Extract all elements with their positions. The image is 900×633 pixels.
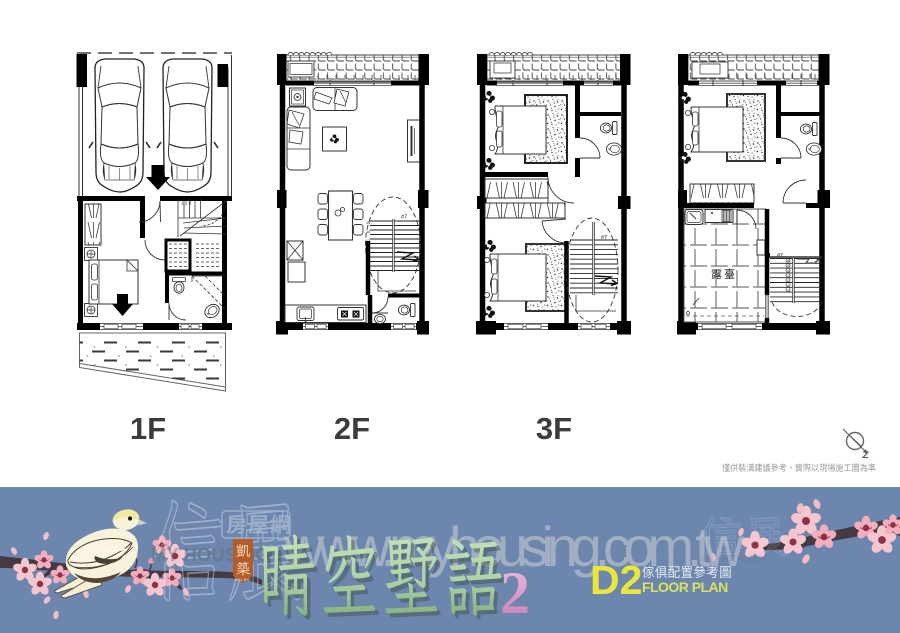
svg-text:12: 12 [786, 279, 790, 283]
svg-text:D2: D2 [590, 557, 642, 603]
svg-text:MY HOUSING: MY HOUSING [700, 554, 764, 565]
svg-text:KAI JHU: KAI JHU [235, 577, 250, 582]
svg-text:13: 13 [563, 262, 567, 266]
svg-text:FLOOR PLAN: FLOOR PLAN [642, 579, 729, 595]
svg-text:3F: 3F [536, 411, 572, 446]
svg-text:11: 11 [563, 280, 567, 284]
svg-text:1F: 1F [130, 411, 166, 446]
svg-text:12: 12 [563, 271, 567, 275]
svg-text:15: 15 [563, 244, 567, 248]
svg-text:#7: #7 [401, 215, 407, 221]
svg-text:1 2 3: 1 2 3 [181, 201, 192, 206]
svg-text:14: 14 [563, 253, 567, 257]
svg-text:15: 15 [366, 221, 370, 225]
svg-text:#7: #7 [777, 253, 783, 259]
svg-text:2F: 2F [334, 411, 370, 446]
svg-text:2: 2 [500, 560, 530, 626]
svg-text:14: 14 [366, 230, 370, 234]
svg-text:#7: #7 [601, 235, 607, 241]
